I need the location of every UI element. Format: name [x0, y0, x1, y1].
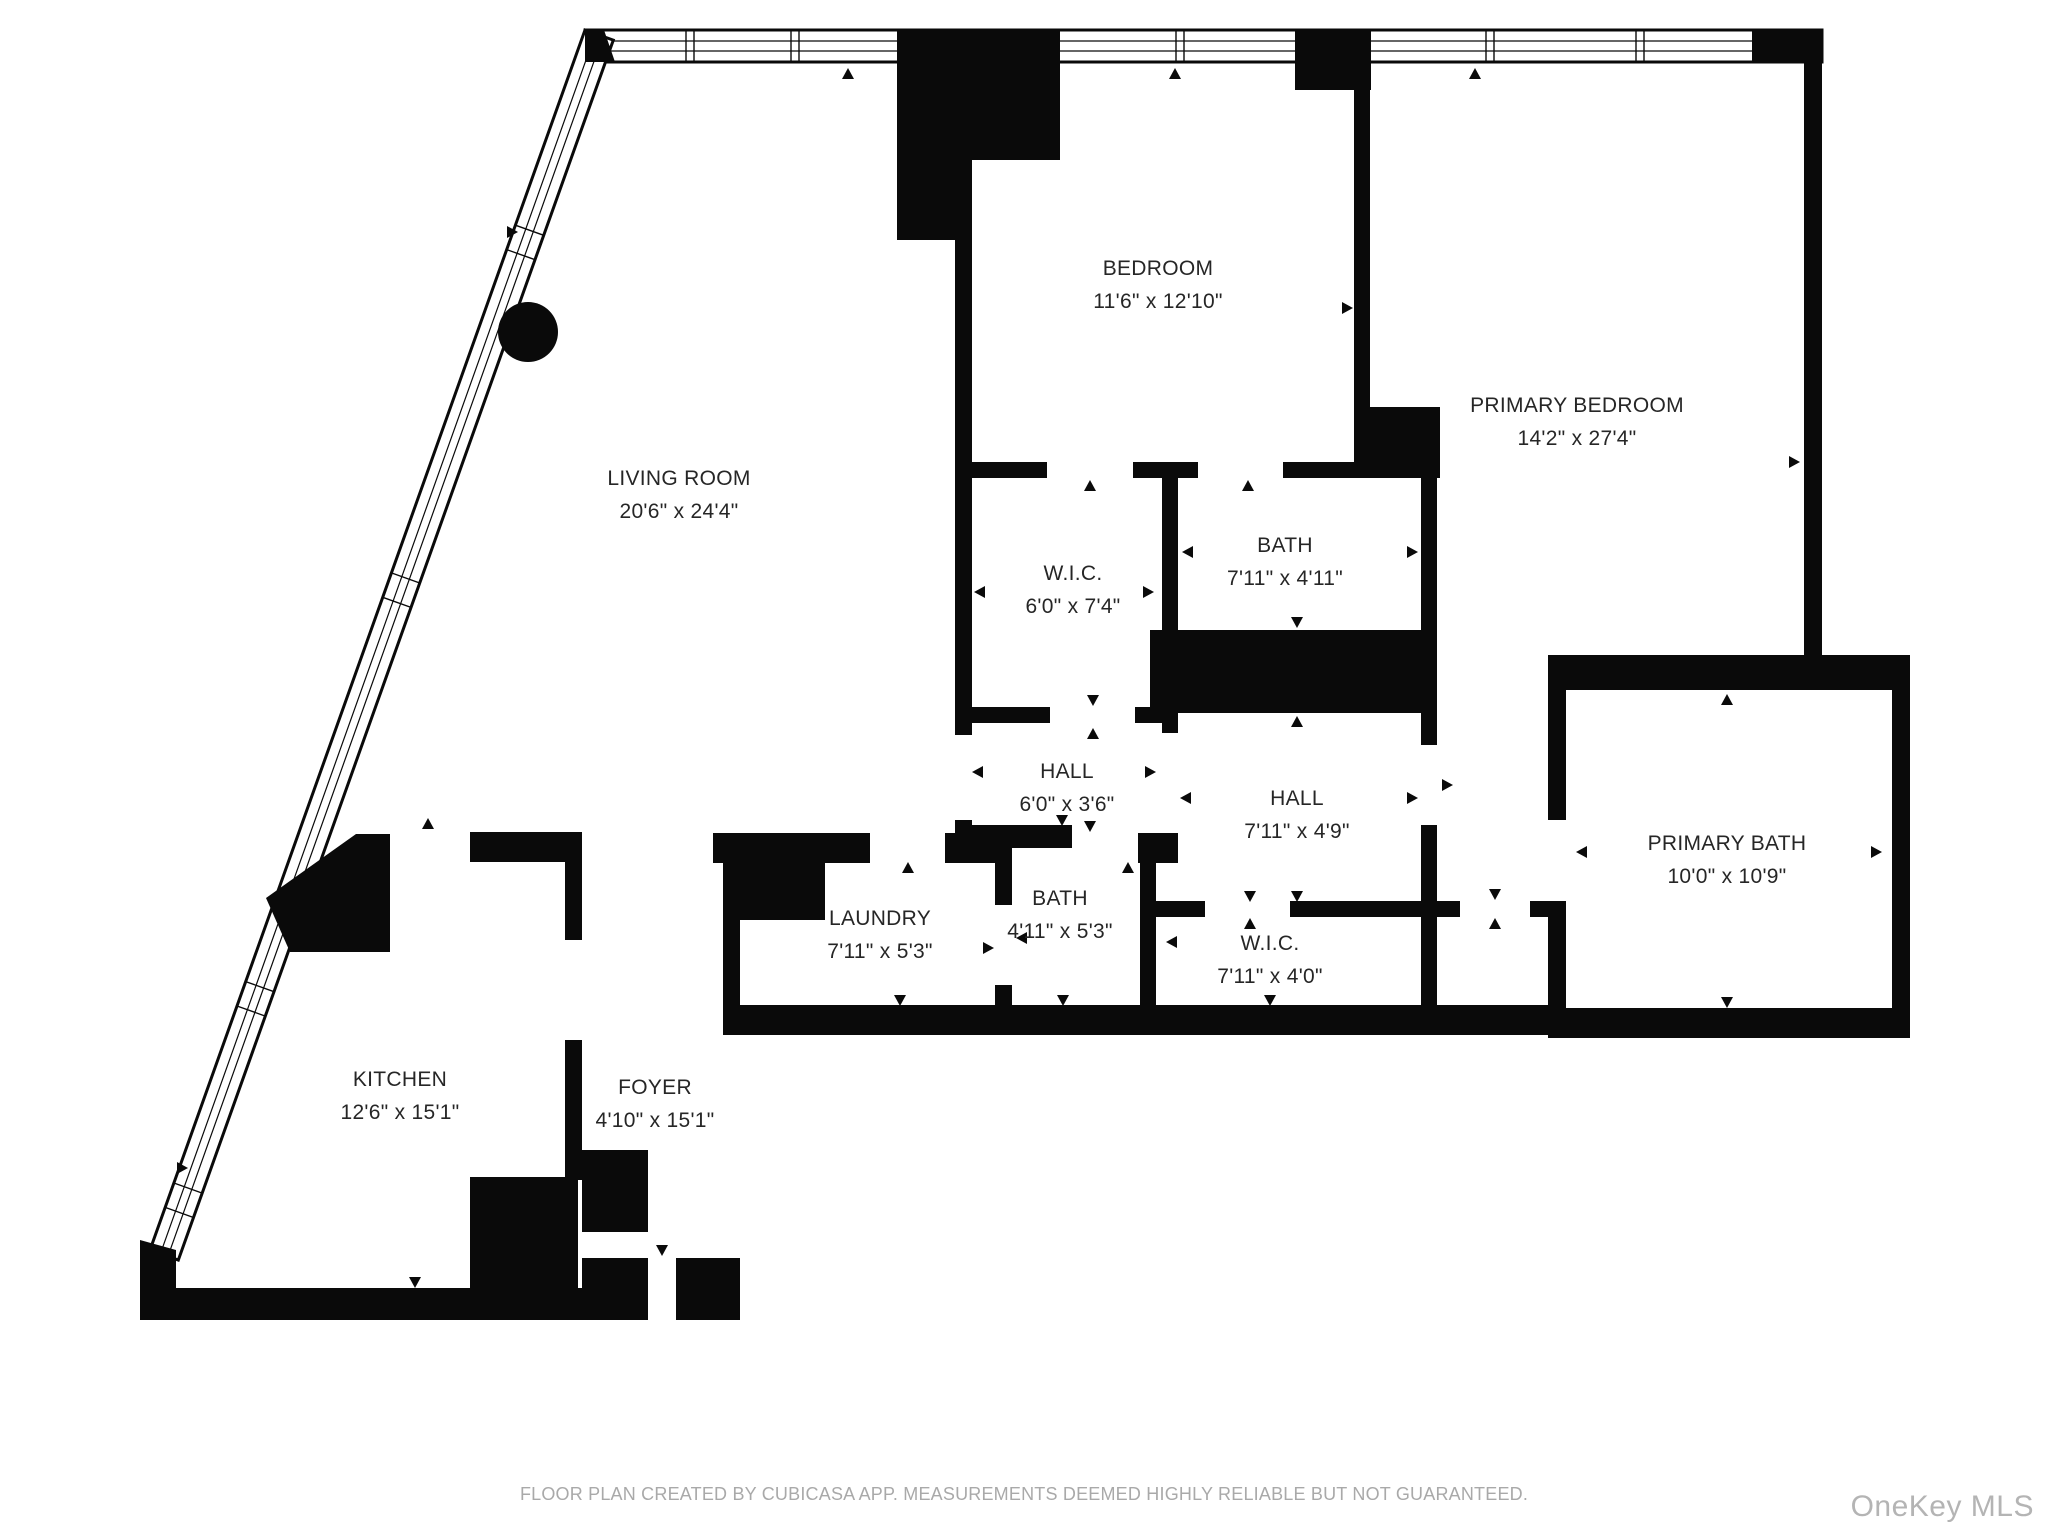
room-label-hall-1: HALL 6'0" x 3'6"	[1019, 755, 1114, 821]
room-label-wic-2: W.I.C. 7'11" x 4'0"	[1217, 927, 1323, 993]
room-label-living-room: LIVING ROOM 20'6" x 24'4"	[607, 462, 750, 528]
room-dims: 7'11" x 4'9"	[1244, 815, 1350, 848]
door-swing-marker	[1180, 792, 1191, 804]
room-name: LIVING ROOM	[607, 462, 750, 495]
room-label-primary-bath: PRIMARY BATH 10'0" x 10'9"	[1648, 827, 1807, 893]
room-dims: 12'6" x 15'1"	[340, 1096, 459, 1129]
room-dims: 7'11" x 4'0"	[1217, 960, 1323, 993]
watermark-onekey-mls: OneKey MLS	[1851, 1490, 2034, 1524]
door-swing-marker	[894, 995, 906, 1006]
floor-plan-page: LIVING ROOM 20'6" x 24'4" BEDROOM 11'6" …	[0, 0, 2048, 1536]
door-swing-marker	[1122, 862, 1134, 873]
door-swing-marker	[1342, 302, 1353, 314]
door-swing-marker	[1291, 617, 1303, 628]
door-swing-marker	[902, 862, 914, 873]
wall-kitchen-corner	[266, 834, 390, 952]
window-band-top	[585, 30, 1822, 62]
door-swing-marker	[1721, 694, 1733, 705]
door-swing-marker	[1087, 728, 1099, 739]
room-name: PRIMARY BEDROOM	[1470, 389, 1684, 422]
room-dims: 6'0" x 7'4"	[1025, 590, 1120, 623]
door-swing-marker	[1789, 456, 1800, 468]
door-swing-marker	[1407, 546, 1418, 558]
door-swing-marker	[409, 1277, 421, 1288]
door-swing-marker	[1143, 586, 1154, 598]
room-dims: 7'11" x 4'11"	[1227, 562, 1343, 595]
door-swing-marker	[1291, 716, 1303, 727]
door-swing-marker	[1242, 480, 1254, 491]
room-name: W.I.C.	[1025, 557, 1120, 590]
door-swing-marker	[1145, 766, 1156, 778]
room-label-laundry: LAUNDRY 7'11" x 5'3"	[827, 902, 933, 968]
door-swing-marker	[422, 818, 434, 829]
room-name: FOYER	[595, 1071, 714, 1104]
door-swing-marker	[1469, 68, 1481, 79]
room-name: BATH	[1007, 882, 1113, 915]
room-name: BEDROOM	[1093, 252, 1223, 285]
door-swing-marker	[1244, 891, 1256, 902]
door-swing-marker	[1084, 821, 1096, 832]
column-icon	[498, 302, 558, 362]
room-name: PRIMARY BATH	[1648, 827, 1807, 860]
room-label-kitchen: KITCHEN 12'6" x 15'1"	[340, 1063, 459, 1129]
door-swing-marker	[1442, 779, 1453, 791]
room-dims: 20'6" x 24'4"	[607, 495, 750, 528]
door-swing-marker	[1407, 792, 1418, 804]
door-swing-marker	[1084, 480, 1096, 491]
door-swing-marker	[1291, 891, 1303, 902]
disclaimer-text: FLOOR PLAN CREATED BY CUBICASA APP. MEAS…	[0, 1484, 2048, 1505]
room-name: BATH	[1227, 529, 1343, 562]
room-dims: 4'10" x 15'1"	[595, 1104, 714, 1137]
door-swing-marker	[1057, 995, 1069, 1006]
door-swing-marker	[1087, 695, 1099, 706]
room-name: LAUNDRY	[827, 902, 933, 935]
room-name: KITCHEN	[340, 1063, 459, 1096]
door-swing-marker	[983, 942, 994, 954]
room-dims: 6'0" x 3'6"	[1019, 788, 1114, 821]
room-dims: 14'2" x 27'4"	[1470, 422, 1684, 455]
room-label-bath-2: BATH 4'11" x 5'3"	[1007, 882, 1113, 948]
door-swing-marker	[1169, 68, 1181, 79]
room-label-primary-bedroom: PRIMARY BEDROOM 14'2" x 27'4"	[1470, 389, 1684, 455]
door-swing-marker	[1721, 997, 1733, 1008]
door-swing-marker	[1182, 546, 1193, 558]
door-swing-marker	[1489, 889, 1501, 900]
room-dims: 11'6" x 12'10"	[1093, 285, 1223, 318]
room-label-wic-1: W.I.C. 6'0" x 7'4"	[1025, 557, 1120, 623]
door-swing-marker	[656, 1245, 668, 1256]
room-dims: 10'0" x 10'9"	[1648, 860, 1807, 893]
door-swing-marker	[974, 586, 985, 598]
door-swing-marker	[972, 766, 983, 778]
room-name: HALL	[1019, 755, 1114, 788]
door-swing-marker	[1166, 936, 1177, 948]
door-swing-marker	[842, 68, 854, 79]
room-label-foyer: FOYER 4'10" x 15'1"	[595, 1071, 714, 1137]
door-swing-marker	[1871, 846, 1882, 858]
wall-shaft-top-center	[897, 30, 1060, 240]
room-label-hall-2: HALL 7'11" x 4'9"	[1244, 782, 1350, 848]
room-label-bath-1: BATH 7'11" x 4'11"	[1227, 529, 1343, 595]
door-swing-marker	[1489, 918, 1501, 929]
room-dims: 4'11" x 5'3"	[1007, 915, 1113, 948]
room-name: W.I.C.	[1217, 927, 1323, 960]
room-label-bedroom: BEDROOM 11'6" x 12'10"	[1093, 252, 1223, 318]
room-dims: 7'11" x 5'3"	[827, 935, 933, 968]
door-swing-marker	[1576, 846, 1587, 858]
door-swing-marker	[1264, 995, 1276, 1006]
wall-shaft-center	[1150, 630, 1437, 713]
room-name: HALL	[1244, 782, 1350, 815]
